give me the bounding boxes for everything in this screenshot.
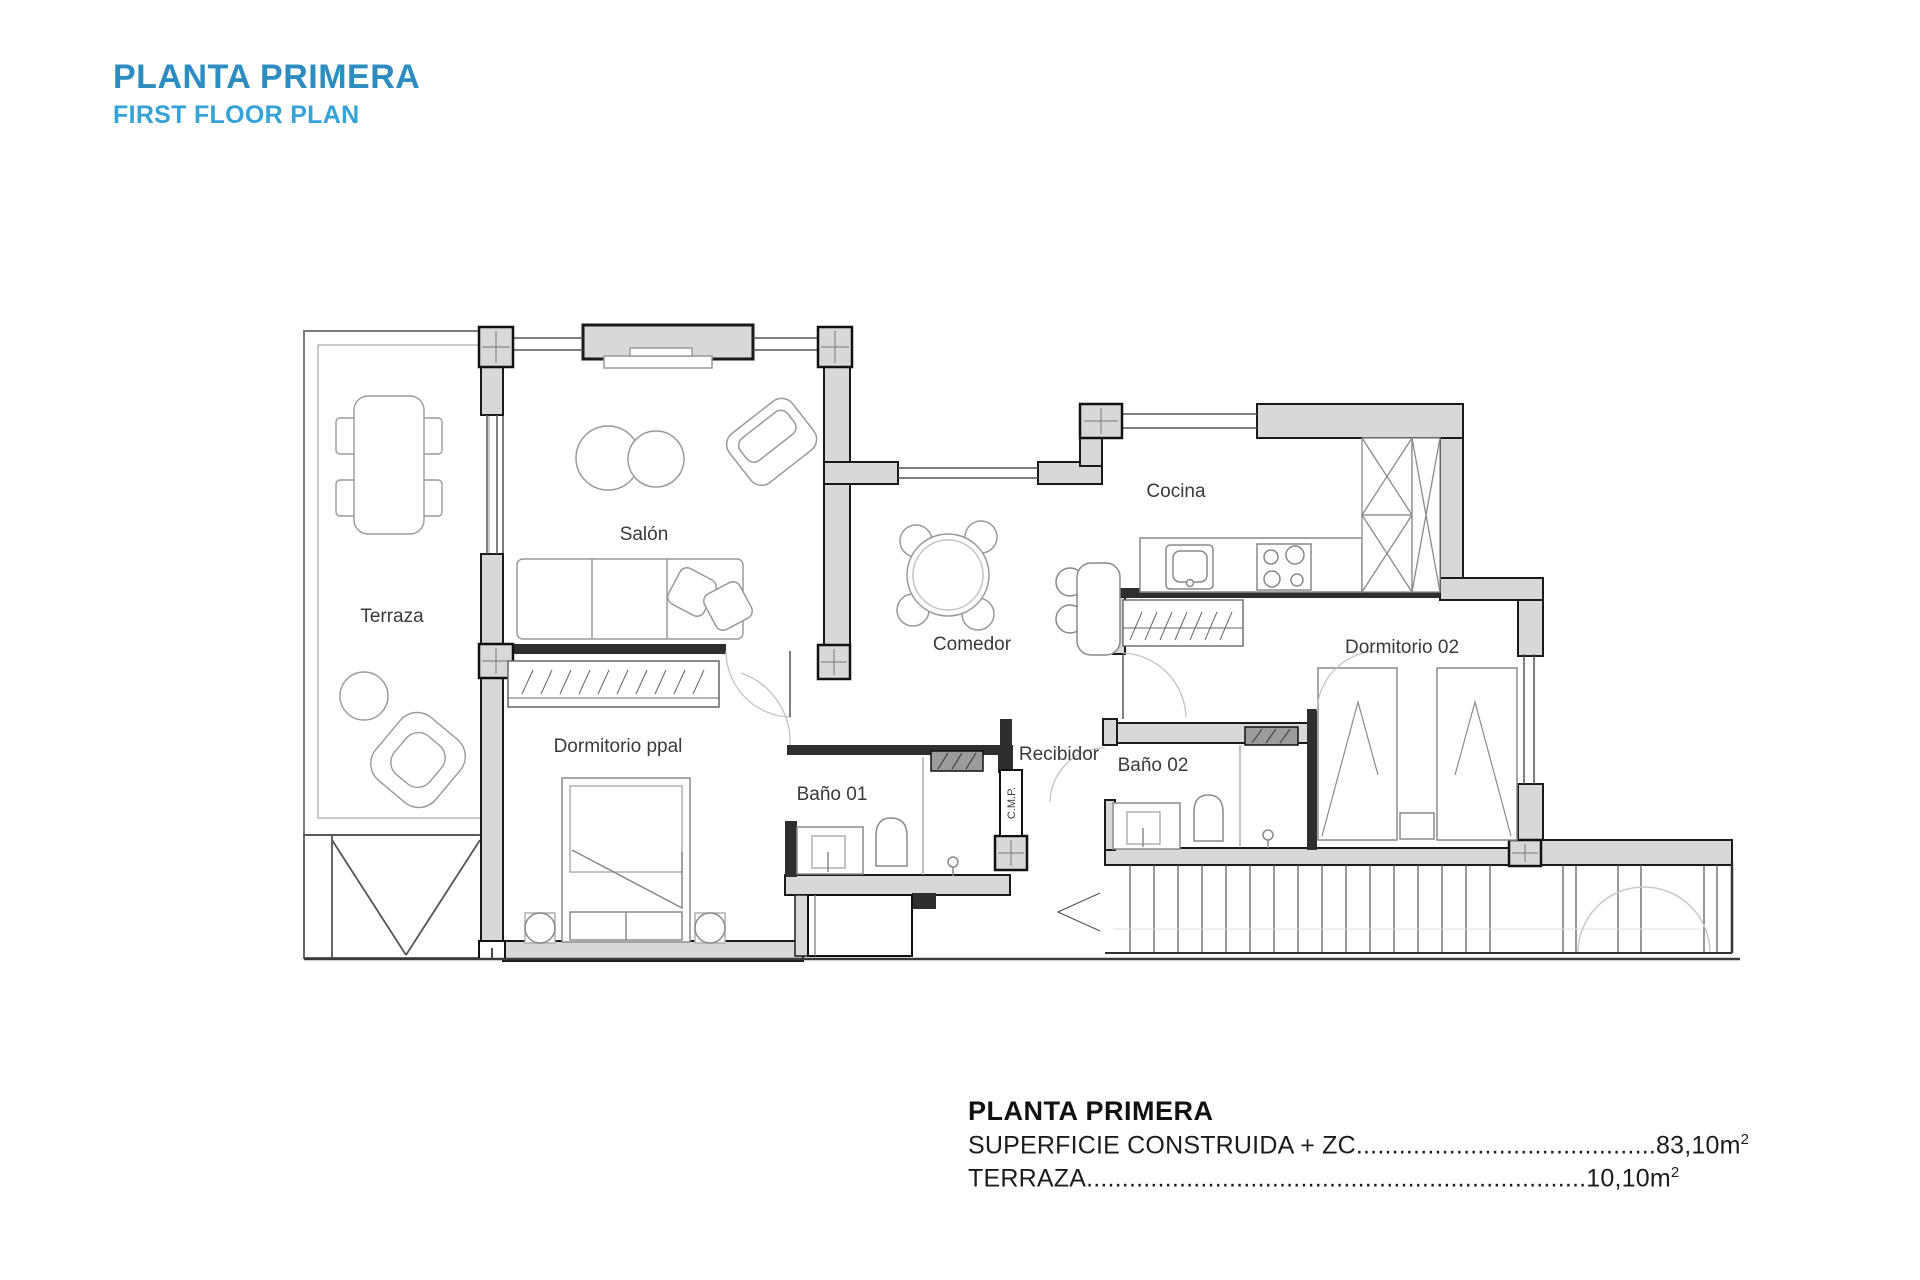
room-label-recibidor: Recibidor	[1019, 744, 1100, 765]
terrace-table	[336, 396, 442, 534]
room-label-salon: Salón	[620, 524, 669, 545]
summary-line-constructed-label: SUPERFICIE CONSTRUIDA + ZC	[968, 1131, 1356, 1159]
summary-line-terrace-label: TERRAZA	[968, 1165, 1086, 1193]
area-summary: PLANTA PRIMERA SUPERFICIE CONSTRUIDA + Z…	[968, 1096, 1749, 1194]
comedor-furniture	[897, 521, 997, 630]
summary-line-terrace-dots: ........................................…	[1086, 1165, 1586, 1193]
room-label-bano-02: Baño 02	[1118, 755, 1189, 776]
cmp-shaft: C.M.P.	[1000, 770, 1022, 836]
title-block: PLANTA PRIMERA FIRST FLOOR PLAN	[113, 60, 420, 128]
summary-line-constructed-sup: 2	[1741, 1131, 1750, 1148]
summary-line-terrace-value: 10,10m	[1586, 1165, 1671, 1193]
room-label-cmp: C.M.P.	[1006, 787, 1018, 819]
summary-title: PLANTA PRIMERA	[968, 1096, 1749, 1127]
summary-line-constructed-value: 83,10m	[1656, 1131, 1741, 1159]
terrace-lounge	[340, 672, 474, 816]
room-label-cocina: Cocina	[1146, 481, 1206, 502]
dormitorio-02-furniture	[1318, 668, 1517, 840]
kitchen-tall-units	[1362, 438, 1440, 592]
summary-line-terrace-sup: 2	[1671, 1164, 1680, 1181]
stairs	[1058, 863, 1732, 953]
salon-furniture	[517, 348, 822, 639]
room-terraza	[304, 331, 503, 835]
lower-annex	[808, 895, 912, 956]
floor-plan-drawing: C.M.P.	[0, 0, 1920, 1280]
recibidor-cabinet	[1123, 600, 1243, 646]
summary-line-terrace: TERRAZA.................................…	[968, 1164, 1749, 1193]
bano-01-fixtures	[797, 751, 983, 876]
room-label-terraza: Terraza	[360, 606, 424, 627]
terrace-lower-structure	[304, 835, 503, 958]
room-label-dormitorio-ppal: Dormitorio ppal	[554, 736, 683, 757]
page-subtitle: FIRST FLOOR PLAN	[113, 102, 420, 128]
dormitorio-ppal-furniture	[508, 661, 725, 943]
floor-plan-page: PLANTA PRIMERA FIRST FLOOR PLAN	[0, 0, 1920, 1280]
summary-line-constructed: SUPERFICIE CONSTRUIDA + ZC..............…	[968, 1131, 1749, 1160]
room-label-bano-01: Baño 01	[797, 784, 868, 805]
summary-line-constructed-dots: ........................................…	[1356, 1131, 1656, 1159]
room-label-comedor: Comedor	[933, 634, 1012, 655]
bano-02-fixtures	[1113, 727, 1298, 849]
page-title: PLANTA PRIMERA	[113, 60, 420, 96]
cocina-fixtures	[1056, 438, 1440, 655]
room-label-dormitorio-02: Dormitorio 02	[1345, 637, 1459, 658]
